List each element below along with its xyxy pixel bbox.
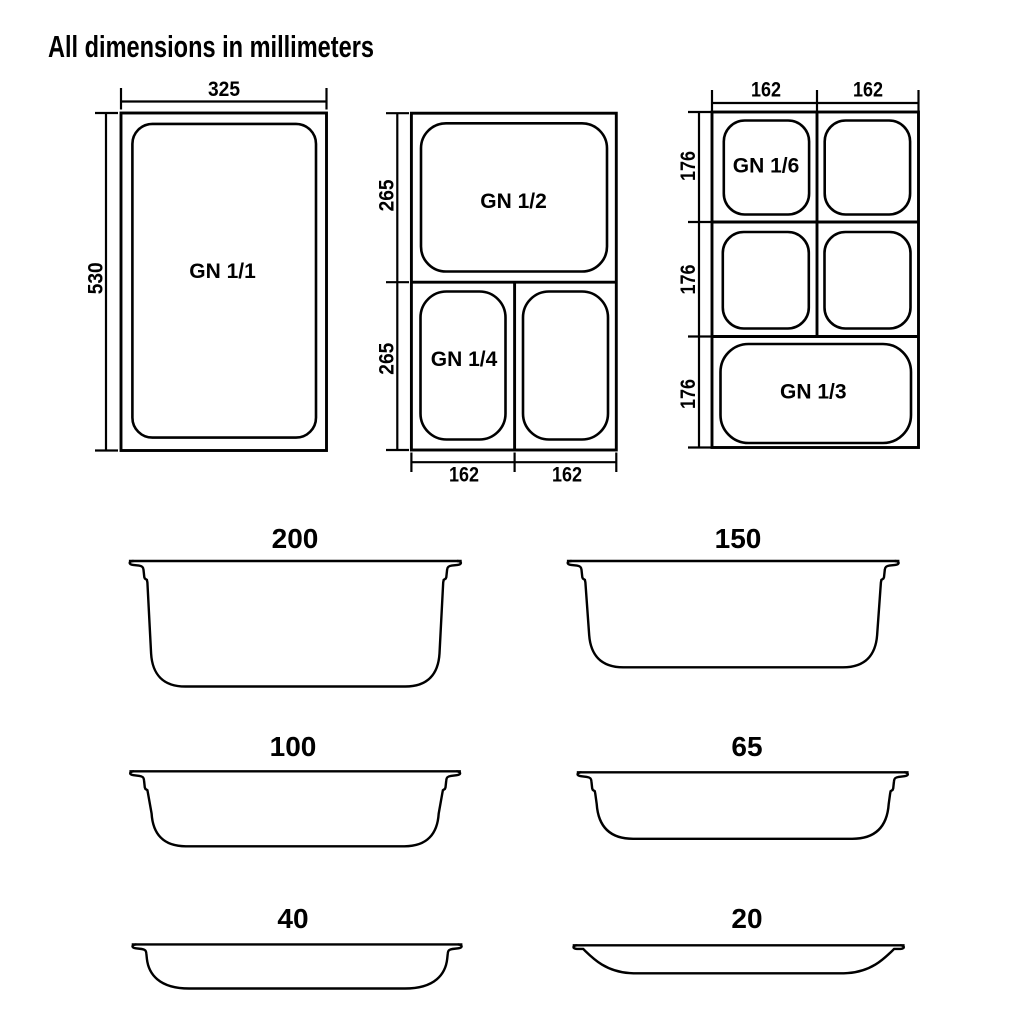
svg-text:176: 176 [677, 265, 700, 295]
svg-text:265: 265 [376, 179, 399, 211]
svg-text:162: 162 [552, 464, 582, 487]
svg-text:100: 100 [270, 731, 317, 762]
svg-text:65: 65 [731, 731, 762, 762]
svg-text:162: 162 [449, 464, 479, 487]
svg-text:325: 325 [208, 78, 240, 101]
svg-text:GN 1/6: GN 1/6 [733, 155, 800, 178]
svg-text:GN 1/4: GN 1/4 [431, 348, 498, 371]
svg-text:GN 1/3: GN 1/3 [780, 381, 847, 404]
svg-text:150: 150 [715, 523, 762, 554]
svg-text:176: 176 [677, 151, 700, 181]
svg-text:265: 265 [376, 342, 399, 374]
svg-text:162: 162 [853, 79, 883, 102]
svg-text:GN 1/1: GN 1/1 [189, 260, 256, 283]
svg-text:530: 530 [85, 262, 108, 294]
svg-text:200: 200 [272, 523, 319, 554]
svg-text:20: 20 [731, 903, 762, 934]
svg-text:162: 162 [751, 79, 781, 102]
svg-text:GN 1/2: GN 1/2 [480, 190, 547, 213]
svg-text:176: 176 [677, 379, 700, 409]
svg-text:40: 40 [277, 903, 308, 934]
svg-text:All dimensions in millimeters: All dimensions in millimeters [48, 29, 374, 64]
